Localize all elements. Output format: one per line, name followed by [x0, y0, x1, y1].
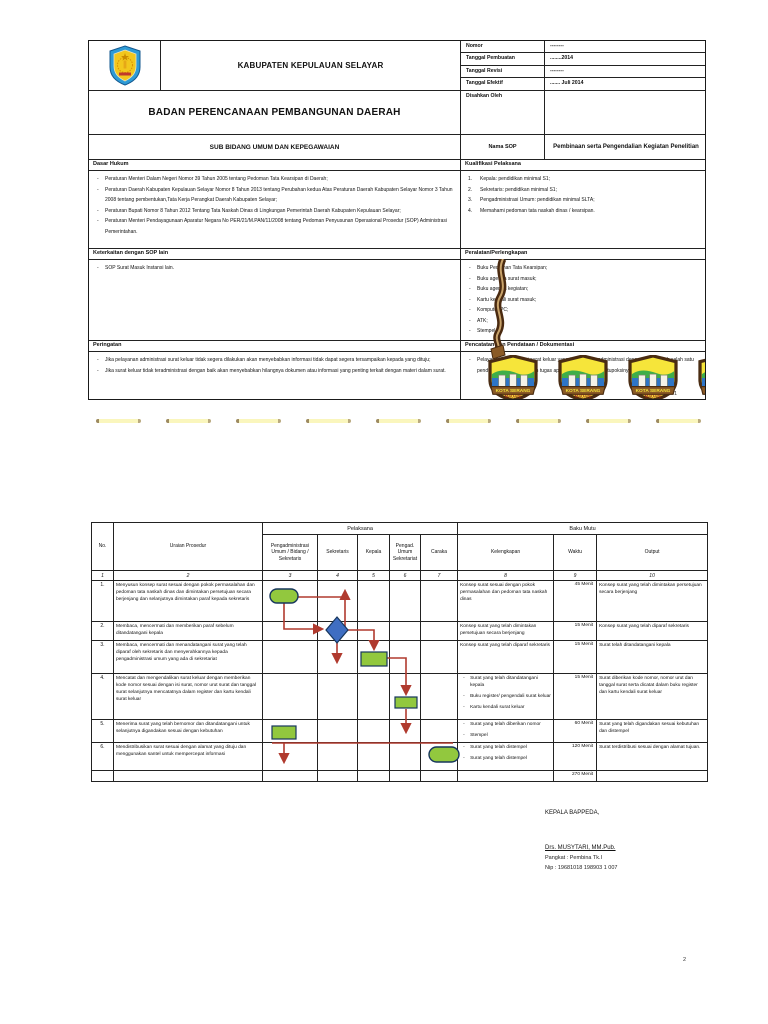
col-header-no: No.: [92, 523, 114, 571]
table-row: 4. Mencatat dan mengendalikan surat kelu…: [92, 674, 708, 720]
group-header-baku-mutu: Baku Mutu: [458, 523, 708, 535]
col-header-pengad-umum: Pengad. Umum Sekretariat: [390, 535, 421, 571]
col-header-pengadministrasi: Pengadministrasi Umum / Bidang / Sekreta…: [263, 535, 318, 571]
empty-cell: [92, 771, 114, 782]
col-num: 10: [597, 571, 708, 581]
flow-lane-cell: [421, 622, 458, 641]
col-header-kelengkapan: Kelengkapan: [458, 535, 554, 571]
col-header-output: Output: [597, 535, 708, 571]
empty-cell: [318, 771, 358, 782]
output-cell: Konsep surat yang telah diparaf sekretar…: [597, 622, 708, 641]
column-number-row: 1 2 3 4 5 6 7 8 9 10: [92, 571, 708, 581]
logo-cell: [89, 41, 161, 91]
list-item: Peraturan Daerah Kabupaten Kepulauan Sel…: [93, 185, 454, 206]
clipped-watermark-strip: [516, 419, 561, 423]
clipped-watermark-strip: [656, 419, 701, 423]
page-2-number: 2: [683, 957, 686, 963]
flow-lane-cell: [263, 622, 318, 641]
list-item: Surat yang telah diberikan nomor: [460, 721, 551, 728]
flow-lane-cell: [358, 743, 390, 771]
flow-lane-cell: [318, 720, 358, 743]
row-no: 2.: [92, 622, 114, 641]
list-item: Jika pelayanan administrasi surat keluar…: [93, 355, 454, 366]
list-item: Peraturan Menteri Pendayagunaan Aparatur…: [93, 216, 454, 237]
peringatan-title: Peringatan: [89, 341, 461, 352]
nama-sop-label: Nama SOP: [461, 135, 545, 160]
disahkan-oleh-label: Disahkan Oleh: [461, 91, 545, 135]
list-item: Kartu kendali surat keluar: [460, 704, 551, 711]
flow-lane-cell: [358, 641, 390, 674]
flow-lane-cell: [421, 674, 458, 720]
kelengkapan-cell: Surat yang telah ditandatangani kepala B…: [458, 674, 554, 720]
flow-lane-cell: [390, 581, 421, 622]
output-cell: Surat yang telah digandakan sesuai kebut…: [597, 720, 708, 743]
tanggal-revisi-value: --------: [545, 66, 706, 78]
row-no: 3.: [92, 641, 114, 674]
flow-lane-cell: [318, 743, 358, 771]
list-item: Peraturan Menteri Dalam Negeri Nomor 39 …: [93, 174, 454, 185]
col-header-caraka: Caraka: [421, 535, 458, 571]
list-item: Pengadministrasi Umum: pendidikan minima…: [465, 195, 701, 206]
signature-name: Drs. MUSYTARI, MM.Pub.: [545, 845, 715, 852]
waktu-cell: 15 Menit: [554, 622, 597, 641]
clipped-watermark-strip: [306, 419, 351, 423]
uraian-cell: Menyusun konsep surat sesuai dengan poko…: [114, 581, 263, 622]
badan-title: BADAN PERENCANAAN PEMBANGUNAN DAERAH: [89, 91, 461, 135]
list-item: Memahami pedoman tata naskah dinas / kea…: [465, 206, 701, 217]
col-num: 1: [92, 571, 114, 581]
table-row: 5. Menerima surat yang telah bernomor da…: [92, 720, 708, 743]
flow-lane-cell: [421, 720, 458, 743]
output-cell: Surat telah ditandatangani kepala: [597, 641, 708, 674]
col-num: 2: [114, 571, 263, 581]
uraian-cell: Membaca, mencermati dan memberikan paraf…: [114, 622, 263, 641]
empty-cell: [458, 771, 554, 782]
uraian-cell: Mencatat dan mengendalikan surat keluar …: [114, 674, 263, 720]
disahkan-oleh-value: [545, 91, 706, 135]
flow-lane-cell: [358, 674, 390, 720]
flow-lane-cell: [263, 674, 318, 720]
signature-block: KEPALA BAPPEDA, Drs. MUSYTARI, MM.Pub. P…: [545, 810, 715, 872]
row-no: 1.: [92, 581, 114, 622]
list-item: Kepala: pendidikan minimal S1;: [465, 174, 701, 185]
waktu-cell: 15 Menit: [554, 641, 597, 674]
nomor-value: --------: [545, 41, 706, 53]
list-item: Surat yang telah ditandatangani kepala: [460, 675, 551, 689]
flow-lane-cell: [263, 743, 318, 771]
row-no: 4.: [92, 674, 114, 720]
table-row: 1. Menyusun konsep surat sesuai dengan p…: [92, 581, 708, 622]
empty-cell: [263, 771, 318, 782]
sub-bidang-title: SUB BIDANG UMUM DAN KEPEGAWAIAN: [89, 135, 461, 160]
col-num: 8: [458, 571, 554, 581]
list-item: Stempel: [460, 732, 551, 739]
keterkaitan-list: SOP Surat Masuk Instansi lain.: [89, 260, 461, 341]
col-header-waktu: Waktu: [554, 535, 597, 571]
uraian-cell: Menerima surat yang telah bernomor dan d…: [114, 720, 263, 743]
kota-serang-watermark: [487, 355, 539, 400]
list-item: Jika surat keluar tidak teradministrasi …: [93, 366, 454, 377]
waktu-cell: 120 Menit: [554, 743, 597, 771]
table-row: 3. Membaca, mencermati dan menandatangan…: [92, 641, 708, 674]
kota-serang-watermark: [697, 355, 706, 400]
signature-title: KEPALA BAPPEDA,: [545, 810, 715, 817]
col-num: 5: [358, 571, 390, 581]
empty-cell: [421, 771, 458, 782]
flow-lane-cell: [421, 641, 458, 674]
col-num: 7: [421, 571, 458, 581]
nomor-label: Nomor: [461, 41, 545, 53]
col-header-sekretaris: Sekretaris: [318, 535, 358, 571]
flow-lane-cell: [318, 581, 358, 622]
total-row: 270 Menit: [92, 771, 708, 782]
flow-lane-cell: [390, 622, 421, 641]
kabupaten-selayar-crest-icon: [108, 45, 142, 86]
tanggal-efektif-label: Tanggal Efektif: [461, 78, 545, 91]
peringatan-list: Jika pelayanan administrasi surat keluar…: [89, 352, 461, 400]
kualifikasi-list: Kepala: pendidikan minimal S1; Sekretari…: [461, 171, 706, 249]
row-no: 6.: [92, 743, 114, 771]
group-header-pelaksana: Pelaksana: [263, 523, 458, 535]
flow-lane-cell: [390, 720, 421, 743]
clipped-watermark-strip: [586, 419, 631, 423]
waktu-cell: 45 Menit: [554, 581, 597, 622]
scan-artifact-ribbon: [489, 259, 517, 359]
signature-nip: Nip : 19681018 198903 1 007: [545, 865, 715, 872]
flow-lane-cell: [358, 720, 390, 743]
tanggal-pembuatan-label: Tanggal Pembuatan: [461, 53, 545, 66]
page-1-number: 1: [674, 391, 677, 397]
list-item: Peraturan Bupati Nomor 8 Tahun 2012 Tent…: [93, 206, 454, 217]
flow-lane-cell: [390, 743, 421, 771]
total-waktu-cell: 270 Menit: [554, 771, 597, 782]
procedure-table: No. Uraian Prosedur Pelaksana Baku Mutu …: [91, 522, 708, 782]
empty-cell: [597, 771, 708, 782]
tanggal-revisi-label: Tanggal Revisi: [461, 66, 545, 78]
flow-lane-cell: [263, 641, 318, 674]
col-num: 4: [318, 571, 358, 581]
dasar-hukum-list: Peraturan Menteri Dalam Negeri Nomor 39 …: [89, 171, 461, 249]
flow-lane-cell: [318, 622, 358, 641]
clipped-watermark-strip: [96, 419, 141, 423]
list-item: Buku register/ pengendali surat keluar: [460, 693, 551, 700]
table-row: 6. Mendistribusikan surat sesuai dengan …: [92, 743, 708, 771]
output-cell: Surat diberikan kode nomor, nomor urut d…: [597, 674, 708, 720]
flow-lane-cell: [390, 674, 421, 720]
flow-lane-cell: [263, 581, 318, 622]
clipped-watermark-strip: [446, 419, 491, 423]
flow-lane-cell: [390, 641, 421, 674]
col-num: 9: [554, 571, 597, 581]
col-num: 3: [263, 571, 318, 581]
uraian-cell: Membaca, mencermati dan menandatangani s…: [114, 641, 263, 674]
waktu-cell: 15 Menit: [554, 674, 597, 720]
flow-lane-cell: [421, 743, 458, 771]
nama-sop-value: Pembinaan serta Pengendalian Kegiatan Pe…: [545, 135, 706, 160]
col-header-uraian: Uraian Prosedur: [114, 523, 263, 571]
clipped-watermark-strip: [236, 419, 281, 423]
empty-cell: [358, 771, 390, 782]
list-item: Sekretaris: pendidikan minimal S1;: [465, 185, 701, 196]
flow-lane-cell: [358, 622, 390, 641]
kualifikasi-title: Kualifikasi Pelaksana: [461, 160, 706, 171]
flow-lane-cell: [421, 581, 458, 622]
list-item: SOP Surat Masuk Instansi lain.: [93, 263, 454, 274]
clipped-watermark-strip: [376, 419, 421, 423]
kota-serang-watermark: [627, 355, 679, 400]
kelengkapan-cell: Konsep surat yang telah dimintakan perse…: [458, 622, 554, 641]
list-item: Surat yang telah distempel: [460, 744, 551, 751]
empty-cell: [114, 771, 263, 782]
clipped-watermark-strip: [166, 419, 211, 423]
uraian-cell: Mendistribusikan surat sesuai dengan ala…: [114, 743, 263, 771]
flow-lane-cell: [358, 581, 390, 622]
kelengkapan-cell: Surat yang telah distempel Surat yang te…: [458, 743, 554, 771]
flow-lane-cell: [263, 720, 318, 743]
table-row: 2. Membaca, mencermati dan memberikan pa…: [92, 622, 708, 641]
kelengkapan-cell: Konsep surat yang telah diparaf sekretar…: [458, 641, 554, 674]
keterkaitan-title: Keterkaitan dengan SOP lain: [89, 249, 461, 260]
kelengkapan-cell: Konsep surat sesuai dengan pokok permasa…: [458, 581, 554, 622]
dasar-hukum-title: Dasar Hukum: [89, 160, 461, 171]
col-header-kepala: Kepala: [358, 535, 390, 571]
empty-cell: [390, 771, 421, 782]
output-cell: Surat terdistribusi sesuai dengan alamat…: [597, 743, 708, 771]
waktu-cell: 60 Menit: [554, 720, 597, 743]
output-cell: Konsep surat yang telah dimintakan perse…: [597, 581, 708, 622]
flow-lane-cell: [318, 674, 358, 720]
flow-lane-cell: [318, 641, 358, 674]
tanggal-pembuatan-value: ........2014: [545, 53, 706, 66]
list-item: Surat yang telah distempel: [460, 755, 551, 762]
signature-pangkat: Pangkat : Pembina Tk.I: [545, 855, 715, 862]
page-1: KABUPATEN KEPULAUAN SELAYAR BADAN PERENC…: [88, 40, 706, 400]
tanggal-efektif-value: ....... Juli 2014: [545, 78, 706, 91]
kabupaten-title: KABUPATEN KEPULAUAN SELAYAR: [161, 41, 461, 91]
kelengkapan-cell: Surat yang telah diberikan nomor Stempel: [458, 720, 554, 743]
row-no: 5.: [92, 720, 114, 743]
col-num: 6: [390, 571, 421, 581]
kota-serang-watermark: [557, 355, 609, 400]
document-scan: KOTA SERANG MADANI KABUPATEN KEPULAUAN S…: [0, 0, 768, 1024]
